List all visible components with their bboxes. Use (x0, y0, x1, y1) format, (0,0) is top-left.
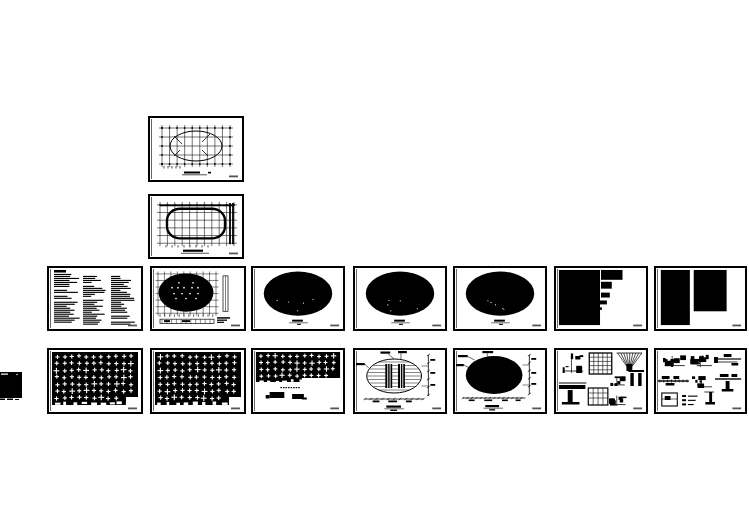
sheet-drawing (355, 268, 445, 329)
sheet-drawing (49, 268, 141, 329)
sheet-drawing (152, 350, 244, 412)
sheet-drawing (0, 372, 22, 400)
sheet-schedule-table-2[interactable] (654, 266, 747, 331)
sheet-framing-plan-partial[interactable] (251, 348, 345, 414)
sheet-drawing (150, 118, 242, 180)
sheet-drawing (355, 350, 445, 412)
sheet-partial-sheet-left-edge[interactable] (0, 372, 22, 400)
sheet-drawing (150, 196, 242, 257)
sheet-drawing (253, 350, 343, 412)
sheet-drawing (656, 268, 745, 329)
sheet-roof-framing-grid-plan[interactable] (148, 116, 244, 182)
sheet-pile-layout-plan[interactable] (150, 266, 246, 331)
sheet-drawing (556, 268, 646, 329)
sheet-connection-details-2[interactable] (654, 348, 747, 414)
sheet-drawing (253, 268, 343, 329)
sheet-floor-plan-3[interactable] (453, 266, 547, 331)
sheet-drawing (49, 350, 141, 412)
sheet-framing-plan-dense-1[interactable] (47, 348, 143, 414)
sheet-floor-plan-2[interactable] (353, 266, 447, 331)
sheet-drawing (455, 268, 545, 329)
sheet-drawing (152, 268, 244, 329)
sheet-connection-details-1[interactable] (554, 348, 648, 414)
sheet-roof-plan-filled[interactable] (453, 348, 547, 414)
sheet-drawing (556, 350, 646, 412)
sheet-drawing (656, 350, 745, 412)
sheet-framing-plan-dense-2[interactable] (150, 348, 246, 414)
sheet-roof-plan-with-cores[interactable] (353, 348, 447, 414)
sheet-floor-plan-1[interactable] (251, 266, 345, 331)
sheet-general-notes[interactable] (47, 266, 143, 331)
sheet-schedule-table-1[interactable] (554, 266, 648, 331)
cad-drawing-set-overview (0, 0, 749, 530)
sheet-drawing (455, 350, 545, 412)
sheet-foundation-grid-plan[interactable] (148, 194, 244, 259)
